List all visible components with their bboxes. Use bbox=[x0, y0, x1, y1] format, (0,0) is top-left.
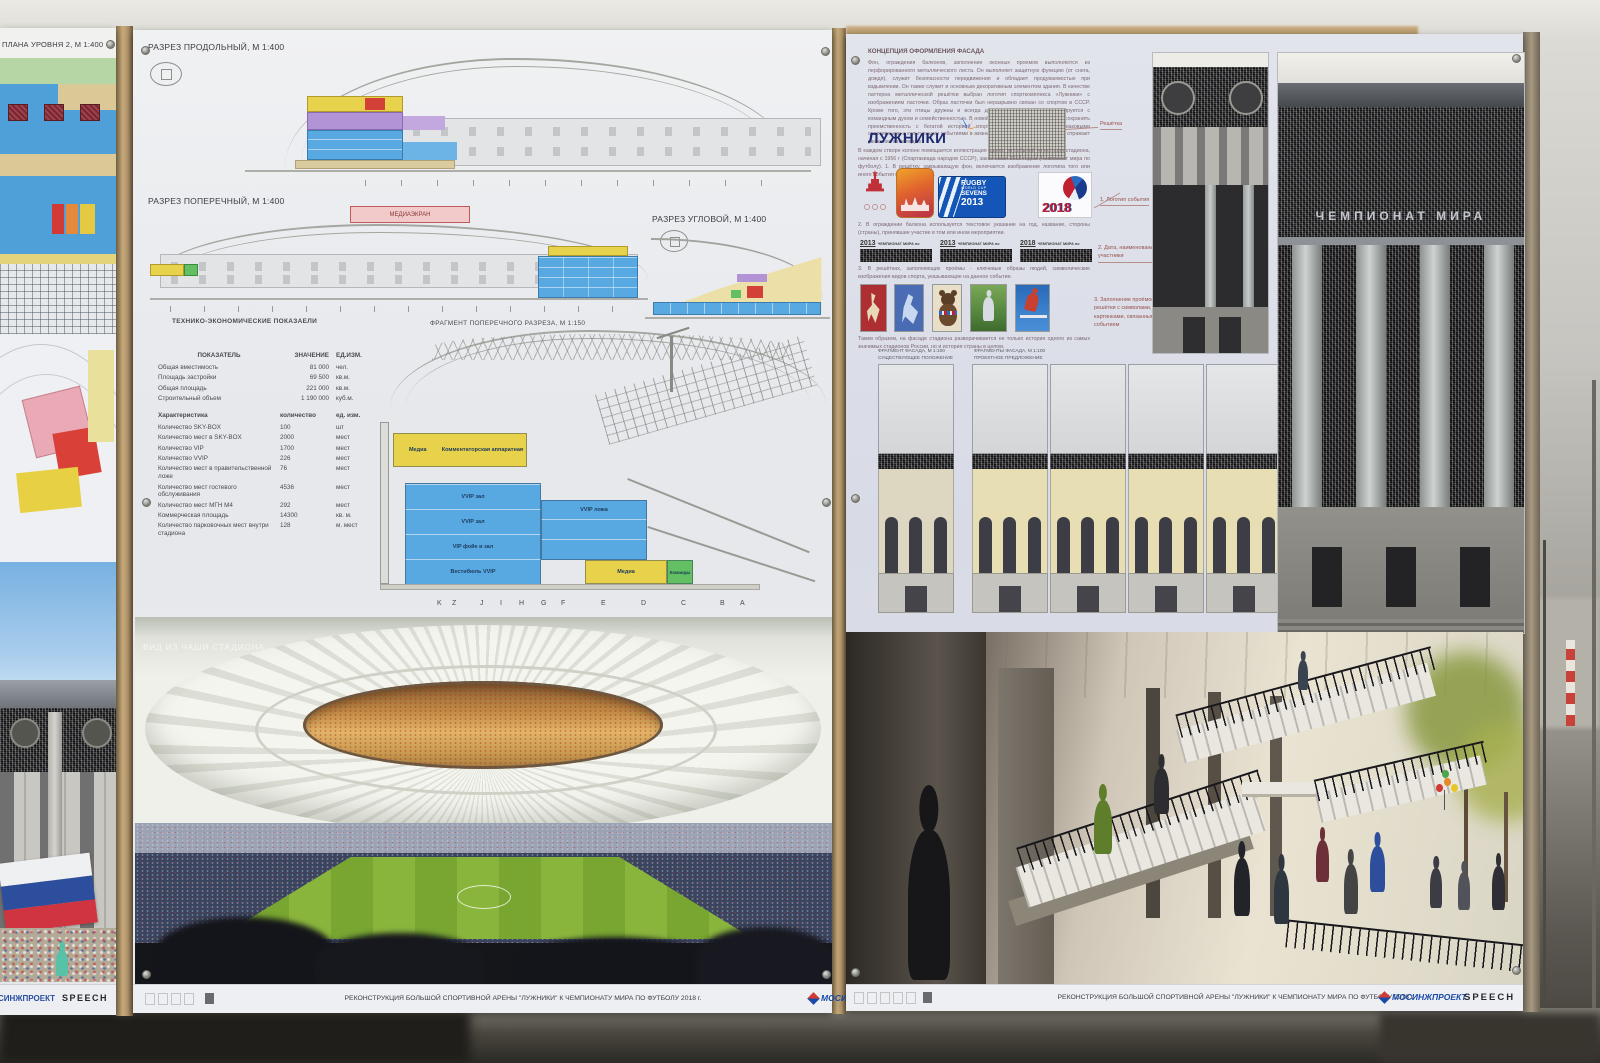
arched-window bbox=[1003, 517, 1016, 573]
media-lower-label: Медиа bbox=[617, 569, 635, 575]
distant-person-3 bbox=[1492, 866, 1505, 910]
plan-hatched-3 bbox=[80, 104, 100, 121]
calibration-squares bbox=[145, 993, 214, 1005]
grid-letter: H bbox=[519, 600, 524, 607]
bay-grid bbox=[1050, 364, 1126, 454]
year-strip-year: 2013 bbox=[860, 240, 876, 247]
stack-blue-2 bbox=[403, 142, 457, 160]
mosinzhproekt-diamond-icon bbox=[1378, 991, 1391, 1004]
bay-frieze bbox=[1050, 454, 1126, 469]
door-opening bbox=[905, 586, 927, 612]
screw bbox=[821, 47, 830, 56]
person-on-upper-stairs bbox=[1298, 660, 1308, 690]
door-opening bbox=[999, 586, 1021, 612]
grate-label: Решётка bbox=[1100, 120, 1122, 130]
grid-letter: I bbox=[500, 600, 502, 607]
plan-key-symbol bbox=[150, 62, 182, 86]
ground-shadow-left bbox=[0, 1012, 470, 1063]
render-column bbox=[1356, 245, 1386, 507]
year-strip-pattern bbox=[860, 249, 932, 262]
stadium-bowl-render: ВИД ИЗ ЧАШИ СТАДИОНА bbox=[135, 617, 832, 985]
table-row: Общая площадь221 000кв.м. bbox=[158, 385, 394, 393]
tech-indicators-title: ТЕХНИКО-ЭКОНОМИЧЕСКИЕ ПОКАЗАЕЛИ bbox=[172, 318, 317, 325]
thin-pole-2 bbox=[1592, 380, 1596, 1020]
rugby2013-logo: RUGBY WORLD CUP SEVENS 2013 bbox=[938, 176, 1006, 218]
mosinzhproekt-text: МОСИНЖПРОЕКТ bbox=[1392, 992, 1467, 1002]
cell: 221 000 bbox=[280, 385, 336, 393]
cell: 226 bbox=[280, 455, 336, 463]
year-strip-2: 2013 ЧЕМПИОНАТ МИРА по bbox=[940, 240, 1012, 262]
poster-rugby-photo bbox=[970, 284, 1007, 332]
arched-window bbox=[1106, 517, 1119, 573]
crowd-silhouette-1 bbox=[155, 917, 335, 985]
opening-speckle bbox=[303, 681, 663, 769]
background-path-band bbox=[1530, 598, 1600, 728]
arched-window bbox=[979, 517, 992, 573]
mosinzhproekt-logo: МОСИНЖПРОЕКТ bbox=[1380, 992, 1467, 1002]
proposed-title-line2: ПРОЕКТНОЕ ПРЕДЛОЖЕНИЕ bbox=[974, 355, 1045, 362]
facade-render-small bbox=[1152, 52, 1269, 354]
bay-frieze bbox=[972, 454, 1048, 469]
grid-letter: D bbox=[641, 600, 646, 607]
base-steps bbox=[1278, 619, 1524, 633]
cal-square bbox=[854, 992, 864, 1004]
cell: 81 000 bbox=[280, 364, 336, 372]
grid-letter: G bbox=[541, 600, 546, 607]
bowl-yellow-strip bbox=[88, 350, 114, 442]
grid-letter: B bbox=[720, 600, 725, 607]
ground-line bbox=[150, 298, 648, 300]
render-column bbox=[1484, 245, 1514, 507]
teams-label: Команды bbox=[670, 570, 691, 575]
left-board-footer: СИНЖПРОЕКТ SPEECH bbox=[0, 984, 116, 1015]
render-wall-band bbox=[1153, 127, 1268, 185]
balloon-yellow bbox=[1451, 784, 1458, 792]
plan-green-band bbox=[0, 58, 116, 85]
woman-green-dress bbox=[1094, 800, 1112, 854]
cell: Общая вместимость bbox=[158, 364, 280, 372]
vvip-hall-label-1: VVIP зал bbox=[461, 494, 484, 500]
bay-base bbox=[1050, 573, 1126, 613]
table-row: Коммерческая площадь14300кв. м. bbox=[158, 512, 394, 520]
deck-windows-1 bbox=[385, 127, 811, 136]
crowd-silhouette-2 bbox=[315, 933, 485, 985]
cell: Количество мест МГН М4 bbox=[158, 502, 280, 510]
door-opening bbox=[1155, 586, 1177, 612]
table-row: Количество SKY-BOX100шт bbox=[158, 424, 394, 432]
ground-line bbox=[245, 170, 811, 172]
year-strip-text: ЧЕМПИОНАТ МИРА по bbox=[878, 242, 920, 246]
cell: Количество VVIP bbox=[158, 455, 280, 463]
corner-red bbox=[747, 286, 763, 298]
level2-plan-fragment bbox=[0, 58, 116, 334]
arched-window bbox=[1184, 517, 1197, 573]
arched-window bbox=[909, 517, 922, 573]
grid-letter: Z bbox=[452, 600, 456, 607]
bay-frieze bbox=[1206, 454, 1282, 469]
athletics2013-logo bbox=[896, 168, 934, 218]
cell: 1 190 000 bbox=[280, 395, 336, 403]
cal-square bbox=[171, 993, 181, 1005]
russian-flag bbox=[0, 853, 98, 934]
olympic-rings bbox=[863, 204, 887, 212]
right-board-footer: РЕКОНСТРУКЦИЯ БОЛЬШОЙ СПОРТИВНОЙ АРЕНЫ "… bbox=[846, 984, 1523, 1011]
render-column bbox=[1243, 185, 1254, 307]
year-strip-3: 2018 ЧЕМПИОНАТ МИРА по bbox=[1020, 240, 1092, 262]
corner-purple bbox=[737, 274, 767, 282]
bay-middle bbox=[1206, 469, 1282, 573]
proposed-title-line1: ФРАГМЕНТЫ ФАСАДА, М 1:100 bbox=[974, 348, 1045, 355]
bay-base bbox=[972, 573, 1048, 613]
render-caption: ВИД ИЗ ЧАШИ СТАДИОНА bbox=[143, 643, 265, 652]
render-column bbox=[1205, 185, 1216, 307]
left-footer-brand-mosinzhproekt: СИНЖПРОЕКТ bbox=[0, 994, 55, 1003]
year-strip-1: 2013 ЧЕМПИОНАТ МИРА по bbox=[860, 240, 932, 262]
championship-frieze-text: ЧЕМПИОНАТ МИРА bbox=[1278, 209, 1524, 223]
screw bbox=[851, 56, 860, 65]
bowl-yellow-sector bbox=[16, 467, 82, 513]
bay-base bbox=[1128, 573, 1204, 613]
fifa-ball-icon bbox=[1063, 176, 1087, 200]
walking-person-1 bbox=[1234, 858, 1250, 916]
plan-tan-band bbox=[0, 154, 116, 176]
render-base bbox=[1153, 307, 1268, 353]
render-base-wall bbox=[1278, 507, 1524, 633]
plan-orange-room bbox=[66, 204, 78, 234]
poster-red-athletes bbox=[860, 284, 887, 332]
corner-blue-base bbox=[653, 302, 821, 315]
cell: Количество SKY-BOX bbox=[158, 424, 280, 432]
stack-purple bbox=[307, 112, 403, 130]
transverse-section-title: РАЗРЕЗ ПОПЕРЕЧНЫЙ, М 1:400 bbox=[148, 196, 284, 206]
bay-frieze bbox=[1128, 454, 1204, 469]
bay-middle bbox=[1050, 469, 1126, 573]
vvip-lodge-block: VVIP ложа bbox=[541, 500, 647, 560]
bay-grid bbox=[1206, 364, 1282, 454]
year-strip-year: 2018 bbox=[1020, 240, 1036, 247]
poster-hurdles-photo bbox=[1015, 284, 1050, 332]
left-facade-photo bbox=[0, 562, 116, 982]
facade-fragment-proposed-title: ФРАГМЕНТЫ ФАСАДА, М 1:100 ПРОЕКТНОЕ ПРЕД… bbox=[974, 348, 1045, 362]
cal-square bbox=[880, 992, 890, 1004]
arched-window bbox=[1057, 517, 1070, 573]
cal-square bbox=[893, 992, 903, 1004]
cell: Общая площадь bbox=[158, 385, 280, 393]
interior-staircase-render bbox=[846, 632, 1523, 986]
tick-row bbox=[365, 180, 785, 186]
bear-ear-left bbox=[939, 290, 945, 296]
grid-letter: K bbox=[437, 600, 442, 607]
table-row: Количество мест в правительственной ложе… bbox=[158, 465, 394, 481]
table-row: Общая вместимость81 000чел. bbox=[158, 364, 394, 372]
bay-frieze bbox=[878, 454, 954, 469]
year-strip-text: ЧЕМПИОНАТ МИРА по bbox=[1038, 242, 1080, 246]
bear-belt bbox=[939, 311, 957, 315]
person-teal bbox=[56, 950, 68, 976]
cell: 100 bbox=[280, 424, 336, 432]
event-logo-label: 1. Логотип события bbox=[1100, 196, 1149, 206]
fifa-2018-text: 2018 bbox=[1042, 200, 1071, 215]
plan-hatched-1 bbox=[8, 104, 28, 121]
bay-grid bbox=[878, 364, 954, 454]
walking-person-2 bbox=[1274, 870, 1289, 924]
render-sky bbox=[1153, 53, 1268, 67]
table-row: Строительный объем1 190 000куб.м. bbox=[158, 395, 394, 403]
facade-concept-title: КОНЦЕПЦИЯ ОФОРМЛЕНИЯ ФАСАДА bbox=[868, 48, 984, 55]
footer-caption: РЕКОНСТРУКЦИЯ БОЛЬШОЙ СПОРТИВНОЙ АРЕНЫ "… bbox=[243, 995, 803, 1002]
stack-tan-base bbox=[295, 160, 455, 169]
cell: 2000 bbox=[280, 434, 336, 442]
col-header: ПОКАЗАТЕЛЬ bbox=[158, 352, 280, 360]
man-black-foreground bbox=[908, 830, 950, 980]
arched-window bbox=[885, 517, 898, 573]
col-header: Характеристика bbox=[158, 412, 280, 420]
col-header: ЗНАЧЕНИЕ bbox=[280, 352, 336, 360]
bay-middle bbox=[972, 469, 1048, 573]
render-column bbox=[1292, 245, 1322, 507]
year-strip-text: ЧЕМПИОНАТ МИРА по bbox=[958, 242, 1000, 246]
cell: Количество мест гостевого обслуживания bbox=[158, 484, 280, 500]
plan-red-room bbox=[52, 204, 64, 234]
teams-block: Команды bbox=[667, 560, 693, 584]
arched-window bbox=[1213, 517, 1226, 573]
balloon-orange bbox=[1444, 778, 1451, 786]
screw bbox=[142, 970, 151, 979]
screw bbox=[851, 494, 860, 503]
cell: Площадь застройки bbox=[158, 374, 280, 382]
characteristics-table: Характеристика количество ед. изм. Колич… bbox=[158, 412, 394, 541]
concept-paragraph-4: 3. В решётках, заполняющих проёмы - ключ… bbox=[858, 266, 1090, 282]
table-row: Количество мест в SKY-BOX2000мест bbox=[158, 434, 394, 442]
vvip-hall-label-2: VVIP зал bbox=[461, 519, 484, 525]
left-green-block bbox=[184, 264, 198, 276]
facade-fragment-existing-title: ФРАГМЕНТ ФАСАДА, М 1:100 СУЩЕСТВУЮЩЕЕ ПО… bbox=[878, 348, 953, 362]
ground-line bbox=[645, 317, 830, 319]
cal-square-filled bbox=[205, 993, 214, 1004]
cal-square bbox=[158, 993, 168, 1005]
render-roof-slab bbox=[1278, 83, 1524, 107]
vvip-lodge-label: VVIP ложа bbox=[580, 507, 608, 513]
arched-window bbox=[1262, 517, 1275, 573]
year-strip-pattern bbox=[940, 249, 1012, 262]
arched-window bbox=[1237, 517, 1250, 573]
left-yellow-block bbox=[150, 264, 184, 276]
speech-logo: SPEECH bbox=[1464, 992, 1515, 1003]
media-commentator-block: Медиа Комментаторская аппаратная bbox=[393, 433, 527, 467]
longitudinal-section-drawing bbox=[215, 56, 827, 196]
wood-post-middle bbox=[832, 28, 846, 1014]
cell: 128 bbox=[280, 522, 336, 530]
swallow-bird-icon bbox=[952, 114, 982, 144]
render-sky bbox=[1278, 53, 1524, 83]
photo-sky bbox=[0, 562, 116, 694]
cell: Количество мест в правительственной ложе bbox=[158, 465, 280, 481]
luzhniki-logo-text: ЛУЖНИКИ bbox=[868, 130, 946, 147]
moscow80-logo bbox=[862, 172, 888, 216]
cell: 1700 bbox=[280, 445, 336, 453]
door-opening bbox=[1233, 586, 1255, 612]
screw bbox=[1512, 966, 1521, 975]
barrier-stripe-pole bbox=[1566, 640, 1575, 726]
cell: Количество парковочных мест внутри стади… bbox=[158, 522, 280, 538]
concrete-column-2 bbox=[998, 668, 1054, 986]
bay-grid bbox=[1128, 364, 1204, 454]
frieze-emblem bbox=[1161, 81, 1195, 115]
frieze-emblem-2 bbox=[82, 718, 112, 748]
corner-section-drawing bbox=[645, 238, 830, 322]
existing-title-line1: ФРАГМЕНТ ФАСАДА, М 1:100 bbox=[878, 348, 953, 355]
frieze-emblem-1 bbox=[10, 718, 40, 748]
plan-yellow-room bbox=[80, 204, 95, 234]
arched-window bbox=[1159, 517, 1172, 573]
bay-base bbox=[878, 573, 954, 613]
walking-person-3 bbox=[1344, 864, 1358, 914]
media-screen-label: МЕДИАЭКРАН bbox=[350, 206, 470, 223]
screw bbox=[142, 498, 151, 507]
crowd-silhouette-3 bbox=[515, 937, 715, 985]
grid-letter: E bbox=[601, 600, 606, 607]
athletics-kremlin-shape bbox=[901, 197, 929, 211]
render-column bbox=[1167, 185, 1178, 307]
grid-letter: C bbox=[681, 600, 686, 607]
transverse-section-drawing: МЕДИАЭКРАН bbox=[150, 206, 648, 318]
facade-bay-proposed-2 bbox=[1050, 364, 1126, 616]
plan-yellow-strip bbox=[0, 254, 116, 264]
tech-table: ПОКАЗАТЕЛЬ ЗНАЧЕНИЕ ЕД.ИЗМ. Общая вмести… bbox=[158, 352, 394, 405]
vvip-vestibule-label: Вестибюль VVIP bbox=[451, 569, 496, 575]
base-door bbox=[1386, 547, 1416, 607]
facade-bay-proposed-1 bbox=[972, 364, 1048, 616]
base-opening bbox=[1183, 317, 1205, 353]
cell: 292 bbox=[280, 502, 336, 510]
render-column bbox=[1420, 245, 1450, 507]
cal-square bbox=[145, 993, 155, 1005]
pitch-center-circle bbox=[457, 885, 511, 909]
table-row: Количество VVIP226мест bbox=[158, 455, 394, 463]
arched-window bbox=[1081, 517, 1094, 573]
cal-square bbox=[867, 992, 877, 1004]
year-strip-pattern bbox=[1020, 249, 1092, 262]
existing-title-line2: СУЩЕСТВУЮЩЕЕ ПОЛОЖЕНИЕ bbox=[878, 355, 953, 362]
stack-blue bbox=[307, 130, 403, 160]
vip-foyer-label: VIP фойе и зал bbox=[453, 544, 494, 550]
balloon-green bbox=[1442, 770, 1449, 778]
year-strip-year: 2013 bbox=[940, 240, 956, 247]
base-door bbox=[1312, 547, 1342, 607]
right-blue-block bbox=[538, 256, 638, 298]
screw bbox=[141, 46, 150, 55]
base-door bbox=[1460, 547, 1490, 607]
corner-section-title: РАЗРЕЗ УГЛОВОЙ, М 1:400 bbox=[652, 214, 766, 224]
table-row: Количество парковочных мест внутри стади… bbox=[158, 522, 394, 538]
table-row: Количество мест гостевого обслуживания45… bbox=[158, 484, 394, 500]
grid-letter: A bbox=[740, 600, 745, 607]
left-footer-brand-speech: SPEECH bbox=[62, 993, 108, 1003]
cal-square bbox=[184, 993, 194, 1005]
cell: 69 500 bbox=[280, 374, 336, 382]
left-board-title: ПЛАНА УРОВНЯ 2, М 1:400 bbox=[2, 40, 103, 49]
bay-middle bbox=[878, 469, 954, 573]
cal-square bbox=[906, 992, 916, 1004]
grid-letter: F bbox=[561, 600, 565, 607]
cross-section-fragment-drawing: Медиа Комментаторская аппаратная VVIP за… bbox=[372, 330, 832, 592]
facade-bay-proposed-3 bbox=[1128, 364, 1204, 616]
longitudinal-section-title: РАЗРЕЗ ПРОДОЛЬНЫЙ, М 1:400 bbox=[148, 42, 284, 52]
wood-post-right-edge bbox=[1523, 32, 1540, 1012]
facade-render-big: ЧЕМПИОНАТ МИРА bbox=[1277, 52, 1525, 634]
cell: 76 bbox=[280, 465, 336, 473]
cell: 4536 bbox=[280, 484, 336, 492]
bay-middle bbox=[1128, 469, 1204, 573]
tick-row bbox=[170, 306, 620, 312]
ground-shadow-right bbox=[1380, 1014, 1600, 1063]
facade-bay-proposed-4 bbox=[1206, 364, 1282, 616]
render-cornice bbox=[1278, 237, 1524, 245]
base-opening bbox=[1219, 317, 1241, 353]
frieze-emblem bbox=[1229, 81, 1263, 115]
arched-window bbox=[934, 517, 947, 573]
fifa2018-logo: 2018 bbox=[1038, 172, 1092, 218]
moscow80-tower bbox=[866, 174, 884, 202]
screw bbox=[106, 40, 115, 49]
door-opening bbox=[1077, 586, 1099, 612]
stack-red-cell bbox=[365, 98, 385, 110]
render-frieze bbox=[1153, 67, 1268, 127]
cal-square-filled bbox=[923, 992, 932, 1003]
table-row: Площадь застройки69 500кв.м. bbox=[158, 374, 394, 382]
commentator-label: Комментаторская аппаратная bbox=[440, 447, 524, 453]
cell: Строительный объем bbox=[158, 395, 280, 403]
cell: Коммерческая площадь bbox=[158, 512, 280, 520]
calibration-squares bbox=[854, 992, 932, 1004]
bay-grid bbox=[972, 364, 1048, 454]
cross-fragment-title: ФРАГМЕНТ ПОПЕРЕЧНОГО РАЗРЕЗА, М 1:150 bbox=[430, 320, 585, 327]
concept-paragraph-3: 2. В ограждении балкона используется тек… bbox=[858, 222, 1090, 238]
balloon-strings bbox=[1444, 790, 1445, 810]
person-maroon bbox=[1316, 840, 1329, 882]
key-inner-rect bbox=[161, 69, 172, 80]
render-colonnade bbox=[1278, 245, 1524, 507]
bear-body bbox=[939, 304, 957, 326]
screw bbox=[1512, 54, 1521, 63]
stack-yellow bbox=[307, 96, 403, 112]
distant-person-2 bbox=[1458, 872, 1470, 910]
thin-pole bbox=[1543, 540, 1546, 1010]
vvip-main-block: VVIP зал VVIP зал VIP фойе и зал Вестибю… bbox=[405, 483, 541, 585]
plan-hatched-2 bbox=[44, 104, 64, 121]
media-label: Медиа bbox=[395, 447, 440, 453]
poster-blue-hockey bbox=[894, 284, 924, 332]
hurdle-bar bbox=[1020, 315, 1047, 318]
man-on-stairs bbox=[1154, 768, 1169, 814]
foreground-railing bbox=[1285, 920, 1523, 973]
screw bbox=[851, 968, 860, 977]
middle-board-footer: РЕКОНСТРУКЦИЯ БОЛЬШОЙ СПОРТИВНОЙ АРЕНЫ "… bbox=[133, 984, 832, 1013]
char-table-header: Характеристика количество ед. изм. bbox=[158, 412, 394, 420]
stack-purple-2 bbox=[403, 116, 445, 130]
cell: Количество мест в SKY-BOX bbox=[158, 434, 280, 442]
tribune-slope bbox=[627, 478, 809, 553]
photo-of-presentation-boards: ПЛАНА УРОВНЯ 2, М 1:400 bbox=[0, 0, 1600, 1063]
media-lower-block: Медиа bbox=[585, 560, 667, 584]
far-stand-band bbox=[135, 823, 832, 853]
screw bbox=[822, 970, 831, 979]
table-row: Количество VIP1700мест bbox=[158, 445, 394, 453]
table-row: Количество мест МГН М4292мест bbox=[158, 502, 394, 510]
cell: Количество VIP bbox=[158, 445, 280, 453]
balloon-red bbox=[1436, 784, 1443, 792]
left-wall bbox=[380, 422, 389, 584]
